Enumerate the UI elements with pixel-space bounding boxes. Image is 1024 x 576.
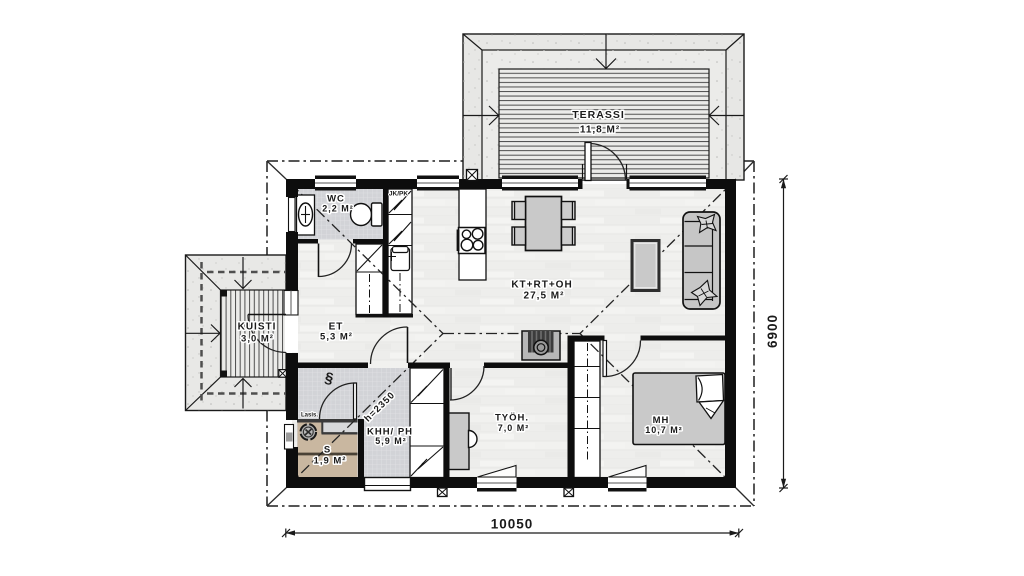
svg-text:5,9 M²: 5,9 M²: [375, 436, 407, 446]
svg-text:6900: 6900: [765, 314, 780, 348]
svg-text:10,7 M²: 10,7 M²: [645, 425, 683, 435]
svg-text:2,2 M²: 2,2 M²: [322, 204, 354, 214]
svg-text:3,0 M²: 3,0 M²: [241, 334, 274, 345]
svg-text:5,3 M²: 5,3 M²: [320, 332, 353, 343]
svg-text:JK/PK: JK/PK: [389, 191, 408, 198]
svg-text:KUISTI: KUISTI: [238, 322, 277, 333]
svg-text:KT+RT+OH: KT+RT+OH: [511, 280, 572, 291]
svg-text:27,5 M²: 27,5 M²: [524, 291, 565, 302]
svg-text:7,0 M²: 7,0 M²: [498, 423, 530, 433]
svg-text:TERASSI: TERASSI: [572, 109, 625, 121]
svg-text:Lasis.: Lasis.: [301, 413, 318, 419]
svg-text:1,9 M²: 1,9 M²: [314, 456, 347, 467]
svg-text:TYÖH.: TYÖH.: [495, 413, 529, 424]
svg-text:11,8 M²: 11,8 M²: [580, 125, 620, 136]
svg-text:S: S: [324, 445, 331, 456]
svg-text:10050: 10050: [491, 517, 534, 532]
